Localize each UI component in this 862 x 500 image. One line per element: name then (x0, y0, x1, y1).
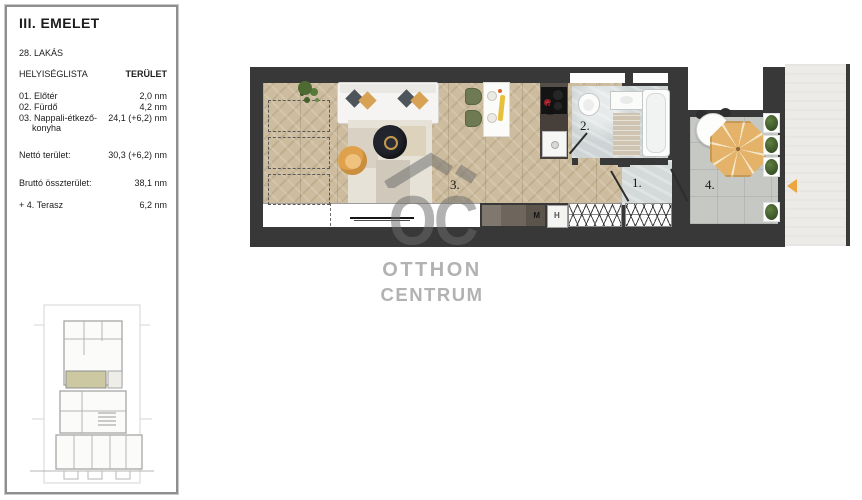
wardrobe (568, 203, 622, 227)
burner (553, 90, 563, 100)
bathtub-basin (646, 93, 666, 153)
wardrobe (625, 203, 672, 227)
dashed-line (330, 203, 332, 226)
parasol-pole (736, 147, 740, 151)
wall-segment (572, 158, 578, 165)
room-list-header: HELYISÉGLISTA (19, 69, 88, 79)
washer-cabinet: M (482, 205, 545, 226)
fridge: H (547, 205, 568, 228)
plate (487, 113, 497, 123)
room-area: 2,0 nm (139, 91, 167, 101)
plant-icon (763, 202, 780, 222)
plate (487, 91, 497, 101)
dashed-storage-zone (268, 174, 330, 205)
bathroom-window (633, 73, 668, 83)
watermark-line2: CENTRUM (372, 284, 492, 306)
sink-drain (551, 141, 559, 149)
room-row: 01. Előtér 2,0 nm (19, 91, 167, 101)
toilet-bowl (583, 99, 594, 111)
parasol (710, 121, 766, 177)
pillow (410, 91, 428, 109)
tv-console (350, 217, 414, 219)
coffee-table-tray (384, 136, 398, 150)
room-area: 4,2 nm (139, 102, 167, 112)
area-header: TERÜLET (126, 69, 168, 79)
washbasin (610, 91, 644, 110)
room-row: 02. Fürdő 4,2 nm (19, 102, 167, 112)
fridge-label: H (554, 211, 560, 220)
net-area-label: Nettó terület: (19, 150, 71, 160)
bathroom-window (570, 73, 625, 83)
coffee-table (373, 125, 407, 159)
rug-patch (376, 160, 410, 203)
gross-area-value: 38,1 nm (134, 178, 167, 188)
plant-icon (763, 157, 780, 177)
window-sill-strip (263, 203, 480, 227)
wall-stub (618, 158, 630, 167)
bath-mat (613, 113, 640, 156)
food-item (498, 89, 502, 93)
gross-area-row: Bruttó összterület: 38,1 nm (19, 178, 167, 188)
basin-bowl (620, 96, 633, 104)
dining-chair (465, 88, 482, 105)
armchair (338, 146, 367, 175)
table-runner (498, 95, 506, 121)
watermark-line1: OTTHON (372, 259, 492, 282)
net-area-value: 30,3 (+6,2) nm (108, 150, 167, 160)
site-plan-unit-highlight (66, 371, 106, 388)
bathtub (642, 89, 670, 157)
apartment-plan: MG M H (250, 67, 785, 247)
washer-label: M (533, 211, 540, 220)
access-corridor (785, 64, 846, 246)
wall-segment (600, 158, 668, 165)
dashed-storage-zone (268, 137, 330, 169)
building-notch (688, 67, 763, 110)
armchair-seat (345, 154, 361, 169)
kitchen-sink (542, 131, 567, 157)
plant-icon (298, 81, 312, 95)
list-header: HELYISÉGLISTA TERÜLET (19, 69, 167, 79)
dining-chair (465, 110, 482, 127)
room-number-living: 3. (450, 177, 460, 193)
site-plan-thumbnail (24, 299, 159, 489)
room-number-terrace: 4. (705, 177, 715, 193)
room-number-bathroom: 2. (580, 118, 590, 134)
entrance-arrow-icon (787, 179, 797, 193)
net-area-row: Nettó terület: 30,3 (+6,2) nm (19, 150, 167, 160)
plant-icon (763, 113, 780, 133)
dashed-storage-zone (268, 100, 330, 132)
corridor-outer-wall (846, 64, 850, 246)
terrace-area-value: 6,2 nm (139, 200, 167, 210)
floor-title: III. EMELET (19, 15, 100, 31)
dining-table (483, 82, 510, 137)
room-number-entry: 1. (632, 175, 642, 191)
plant-icon (763, 135, 780, 155)
sofa (337, 82, 439, 124)
entrance-door-swing (670, 169, 688, 202)
room-label: 01. Előtér (19, 91, 58, 101)
info-panel: III. EMELET 28. LAKÁS HELYISÉGLISTA TERÜ… (5, 5, 178, 494)
room-row: 03. Nappali-étkező-konyha 24,1 (+6,2) nm (19, 113, 167, 133)
gross-area-label: Bruttó összterület: (19, 178, 92, 188)
terrace-area-label: + 4. Terasz (19, 200, 63, 210)
pillow (358, 91, 376, 109)
room-area: 24,1 (+6,2) nm (108, 113, 167, 133)
dishwasher-label: MG (546, 102, 555, 115)
room-label: 03. Nappali-étkező-konyha (19, 113, 97, 133)
apartment-number: 28. LAKÁS (19, 48, 63, 58)
floorplan-sheet: III. EMELET 28. LAKÁS HELYISÉGLISTA TERÜ… (0, 0, 862, 500)
toilet (578, 93, 600, 116)
burner (554, 102, 562, 110)
terrace-area-row: + 4. Terasz 6,2 nm (19, 200, 167, 210)
tv-console-shelf (354, 220, 410, 221)
room-label: 02. Fürdő (19, 102, 58, 112)
